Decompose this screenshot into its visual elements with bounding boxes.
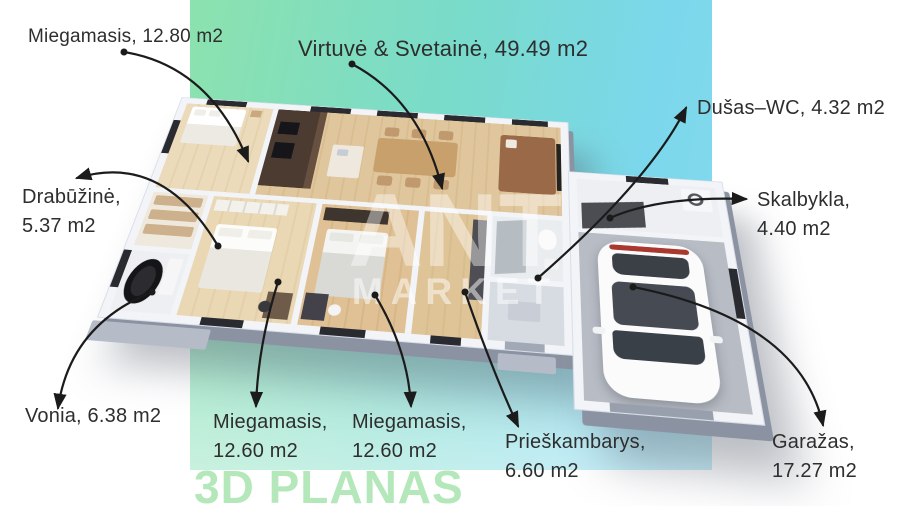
- garage-wing: [569, 172, 764, 425]
- room-label-entrance-hall: Prieškambarys, 6.60 m2: [505, 428, 646, 486]
- room-label-shower-wc: Dušas–WC, 4.32 m2: [697, 94, 885, 123]
- dining-table: [373, 138, 458, 178]
- room-label-text: Vonia, 6.38 m2: [25, 402, 161, 431]
- car-rear-window: [612, 253, 691, 280]
- room-label-walk-in-closet: Drabūžinė, 5.37 m2: [22, 183, 121, 241]
- room-label-text: Miegamasis,: [213, 408, 327, 437]
- car-roof-glass: [611, 281, 699, 331]
- bed-pillow: [193, 109, 206, 116]
- room-label-bedroom-bottom-1: Miegamasis, 12.60 m2: [213, 408, 327, 466]
- fridge-appliance: [271, 142, 295, 159]
- main-building: [98, 98, 573, 355]
- oven-appliance: [277, 122, 300, 135]
- room-label-text: Miegamasis,: [352, 408, 466, 437]
- room-label-text: 4.40 m2: [757, 215, 850, 244]
- tv-panel: [556, 144, 561, 191]
- room-label-text: 12.60 m2: [352, 437, 466, 466]
- room-label-bedroom-bottom-2: Miegamasis, 12.60 m2: [352, 408, 466, 466]
- floorplan-poster: 3D PLANAS: [0, 0, 900, 506]
- nightstand: [250, 110, 262, 117]
- room-label-text: Dušas–WC, 4.32 m2: [697, 94, 885, 123]
- room-label-text: Drabūžinė,: [22, 183, 121, 212]
- bed-pillow: [218, 227, 244, 237]
- room-label-text: 5.37 m2: [22, 212, 121, 241]
- car-mirror: [592, 326, 605, 334]
- bed-blanket: [198, 247, 272, 293]
- floor-plan-3d: [79, 98, 764, 425]
- room-label-text: Skalbykla,: [757, 186, 850, 215]
- room-label-garage: Garažas, 17.27 m2: [772, 428, 857, 486]
- room-label-bedroom-top-left: Miegamasis, 12.80 m2: [28, 22, 223, 51]
- room-label-text: 17.27 m2: [772, 457, 857, 486]
- shower-panel: [495, 220, 527, 274]
- footer-title: 3D PLANAS: [194, 464, 464, 506]
- dining-chair: [433, 179, 449, 190]
- island-sink: [336, 149, 348, 156]
- car-windshield: [612, 330, 706, 366]
- dining-chair: [384, 127, 400, 137]
- wc-sink: [544, 258, 559, 270]
- bed-pillow: [359, 234, 384, 244]
- sofa-pillow: [506, 139, 517, 148]
- dining-chair: [438, 131, 453, 141]
- room-label-text: Virtuvė & Svetainė, 49.49 m2: [298, 34, 588, 63]
- room-label-text: Garažas,: [772, 428, 857, 457]
- laundry-counter: [581, 202, 646, 229]
- room-label-kitchen-living: Virtuvė & Svetainė, 49.49 m2: [298, 34, 588, 63]
- dining-chair: [376, 175, 393, 186]
- bed-blanket: [180, 123, 242, 146]
- room-label-text: Prieškambarys,: [505, 428, 646, 457]
- room-label-text: Miegamasis, 12.80 m2: [28, 22, 223, 51]
- entrance-step: [497, 353, 556, 374]
- toilet: [538, 229, 556, 250]
- doormat: [508, 301, 540, 323]
- room-label-bathroom: Vonia, 6.38 m2: [25, 402, 161, 431]
- bed-pillow: [208, 110, 221, 117]
- bed-pillow: [329, 232, 354, 242]
- room-label-laundry: Skalbykla, 4.40 m2: [757, 186, 850, 244]
- dining-chair: [405, 177, 421, 188]
- bed-pillow: [247, 230, 273, 240]
- room-label-text: 12.60 m2: [213, 437, 327, 466]
- desk: [300, 293, 328, 321]
- bed-blanket: [314, 252, 385, 300]
- car-mirror: [709, 336, 723, 344]
- room-label-text: 6.60 m2: [505, 457, 646, 486]
- dining-chair: [411, 129, 427, 139]
